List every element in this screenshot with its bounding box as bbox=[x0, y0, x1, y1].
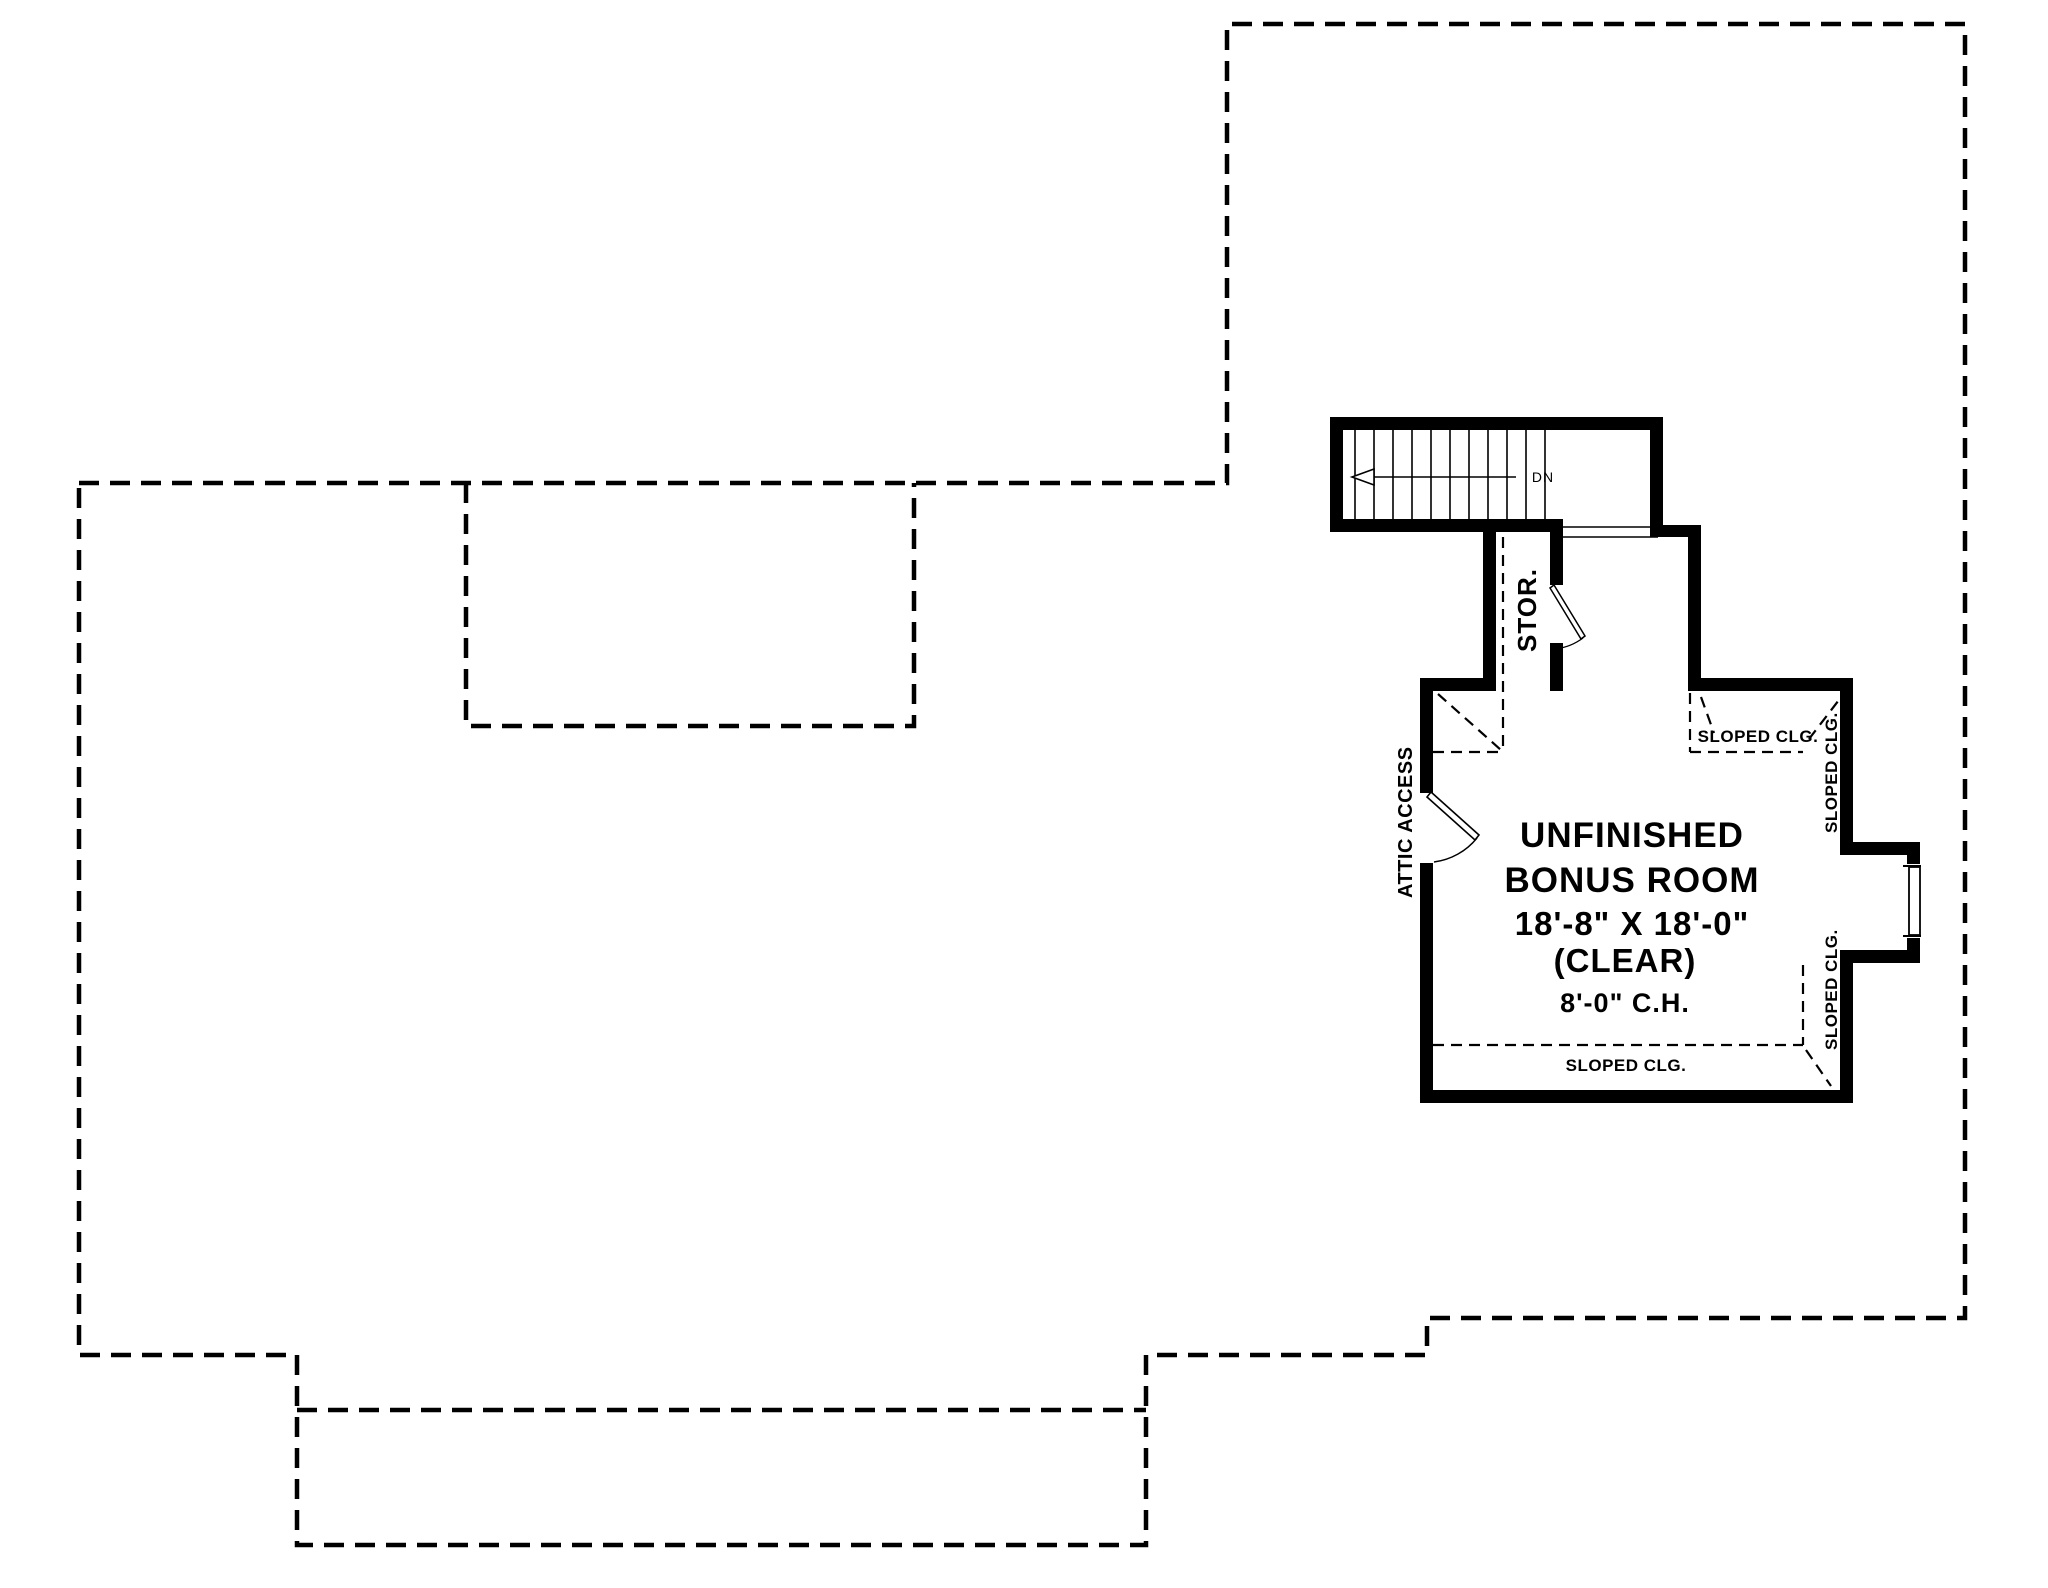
storage-left-wall bbox=[1483, 519, 1496, 691]
storage-door-leaf bbox=[1550, 585, 1585, 639]
storage-right-wall-upper bbox=[1550, 519, 1563, 585]
labels-group: DN STOR. ATTIC ACCESS UNFINISHED BONUS R… bbox=[1395, 469, 1841, 1075]
stairs-dn-label: DN bbox=[1532, 469, 1554, 485]
stair-treads bbox=[1355, 430, 1545, 519]
room-top-wall-right bbox=[1688, 678, 1853, 691]
sloped-line-topleft-diagonal bbox=[1438, 694, 1501, 750]
sloped-clg-label-top-right: SLOPED CLG. bbox=[1698, 727, 1819, 746]
room-clear-note: (CLEAR) bbox=[1554, 942, 1697, 979]
roof-outline-path bbox=[79, 24, 1965, 1545]
sloped-clg-label-bottom: SLOPED CLG. bbox=[1566, 1056, 1687, 1075]
attic-access-label: ATTIC ACCESS bbox=[1395, 746, 1417, 898]
room-left-wall-upper bbox=[1420, 678, 1433, 793]
room-right-wall-lower bbox=[1840, 950, 1853, 1103]
stair-left-wall bbox=[1330, 417, 1343, 532]
stair-right-wall bbox=[1650, 417, 1663, 537]
sloped-clg-label-right-lower: SLOPED CLG. bbox=[1822, 929, 1841, 1050]
room-title-line1: UNFINISHED bbox=[1520, 816, 1744, 855]
roof-inner-rectangle bbox=[466, 483, 914, 726]
room-title-line2: BONUS ROOM bbox=[1505, 861, 1760, 900]
storage-label: STOR. bbox=[1512, 568, 1542, 652]
sloped-line-bottomright-diagonal bbox=[1806, 1050, 1831, 1086]
attic-access-door-leaf bbox=[1427, 792, 1479, 840]
stair-top-wall bbox=[1330, 417, 1663, 430]
floor-plan-canvas: DN STOR. ATTIC ACCESS UNFINISHED BONUS R… bbox=[0, 0, 2048, 1583]
landing-right-wall bbox=[1688, 525, 1701, 691]
room-bottom-wall bbox=[1420, 1090, 1853, 1103]
attic-access-door-swing bbox=[1434, 838, 1477, 862]
bay-window-group bbox=[1903, 864, 1924, 938]
stair-bottom-wall bbox=[1330, 519, 1563, 532]
room-right-wall-upper bbox=[1840, 678, 1853, 855]
room-ceiling-height: 8'-0" C.H. bbox=[1560, 988, 1690, 1018]
room-dimensions: 18'-8" X 18'-0" bbox=[1515, 905, 1749, 942]
stair-railing-lines bbox=[1563, 527, 1658, 537]
bay-window-frame bbox=[1909, 867, 1920, 935]
sloped-clg-label-right-upper: SLOPED CLG. bbox=[1822, 712, 1841, 833]
roof-outline-group bbox=[79, 24, 1965, 1545]
room-left-wall-lower bbox=[1420, 863, 1433, 1103]
storage-right-wall-lower bbox=[1550, 643, 1563, 691]
